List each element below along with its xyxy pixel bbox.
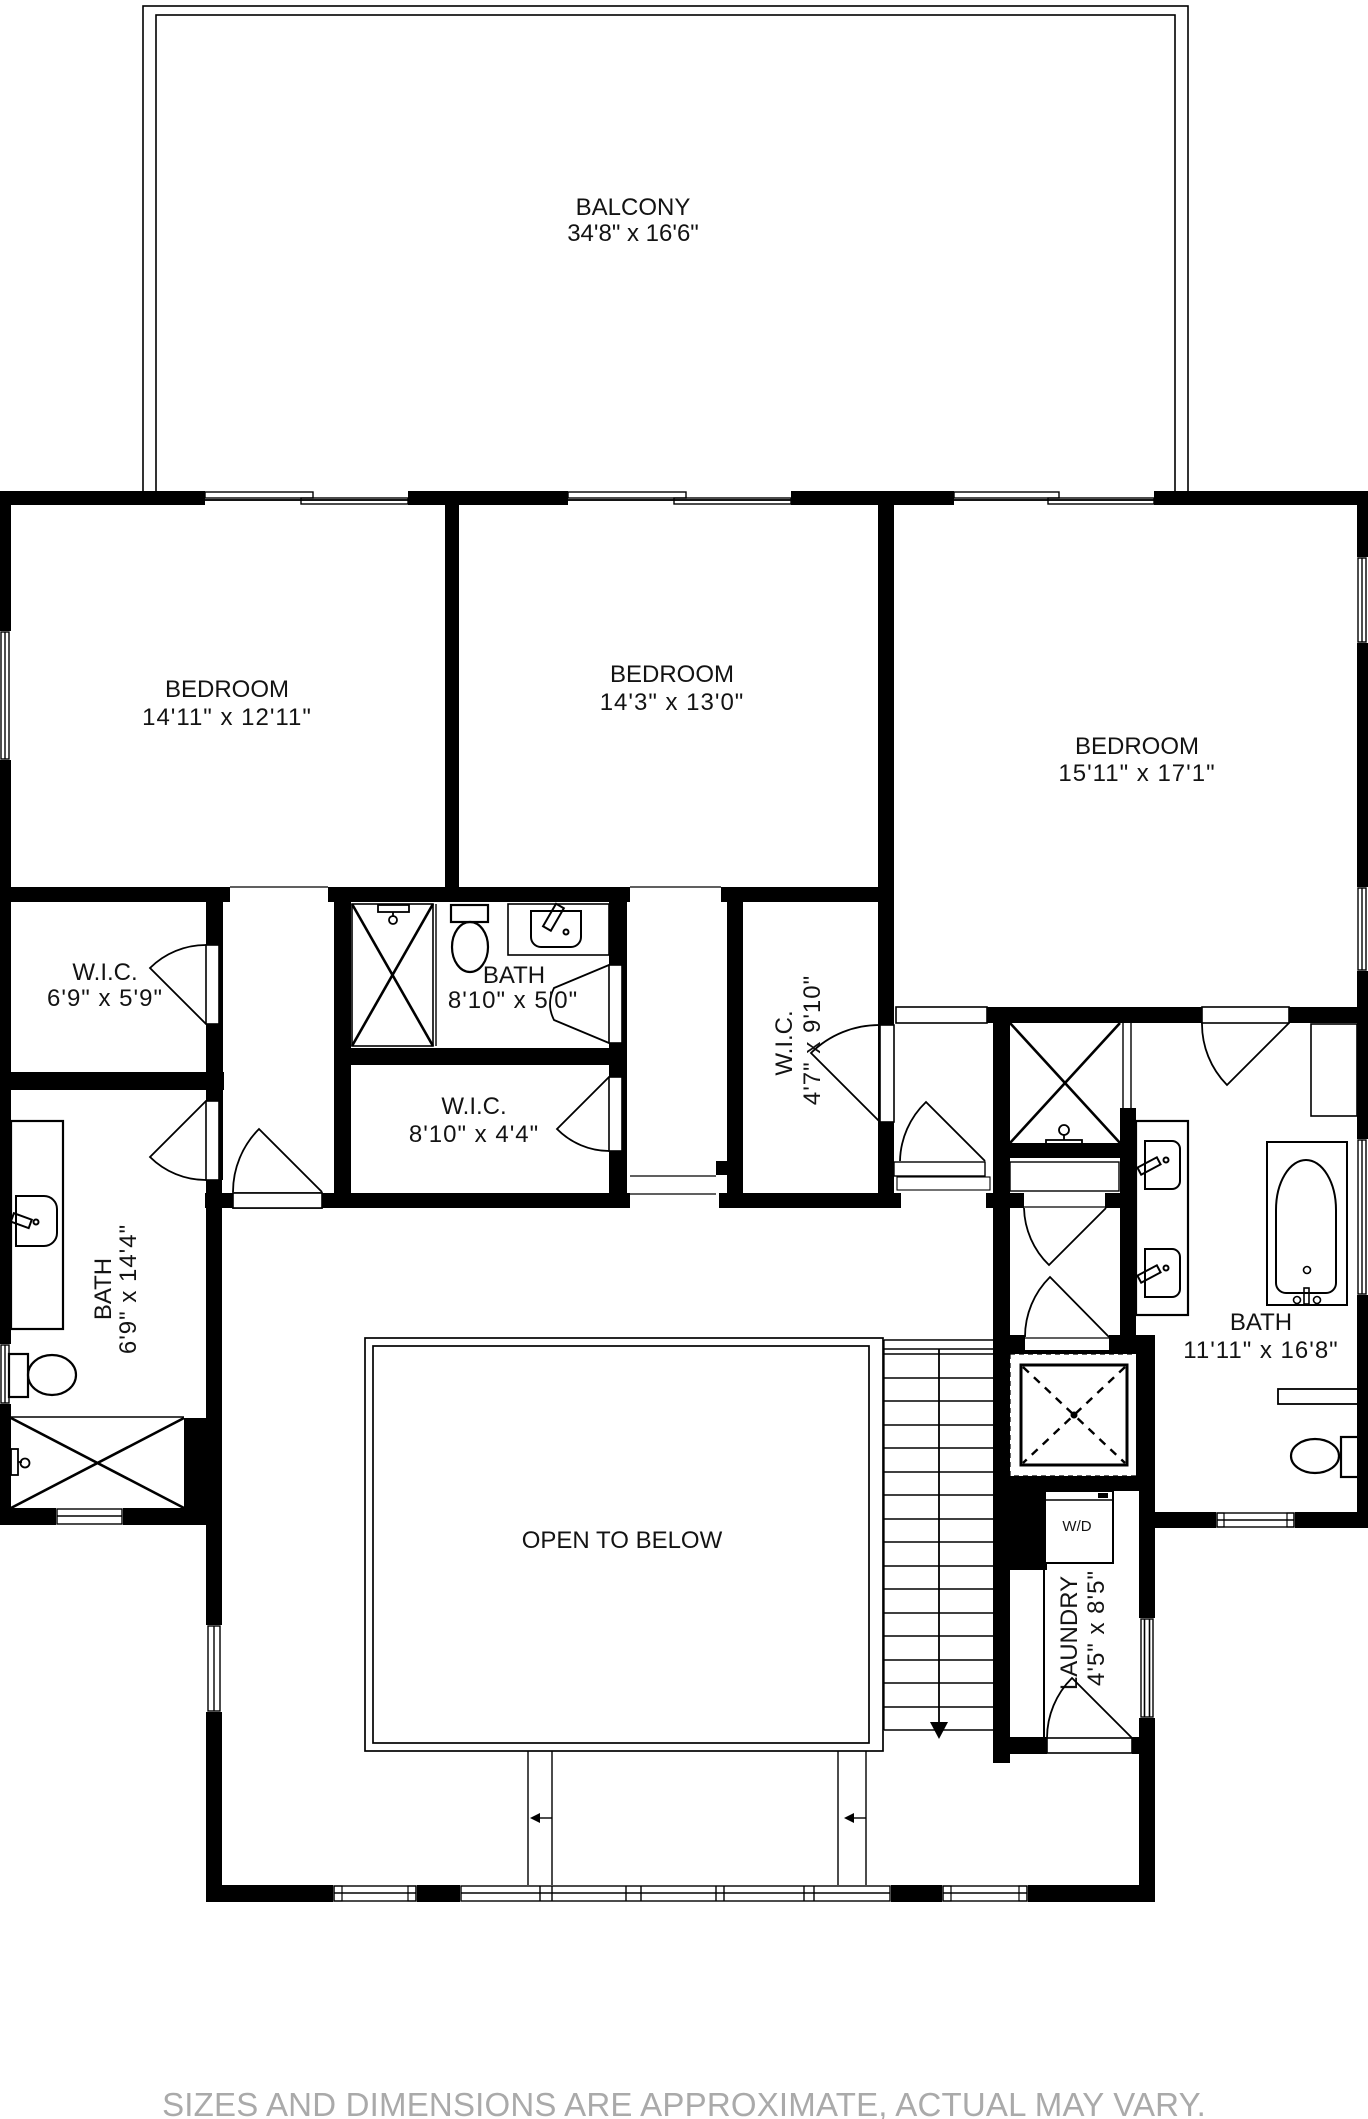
svg-text:BEDROOM: BEDROOM bbox=[1075, 733, 1199, 760]
svg-text:34'8" x 16'6": 34'8" x 16'6" bbox=[567, 220, 699, 247]
svg-text:15'11" x 17'1": 15'11" x 17'1" bbox=[1058, 760, 1215, 787]
svg-text:BATH: BATH bbox=[90, 1258, 117, 1320]
svg-text:OPEN TO BELOW: OPEN TO BELOW bbox=[522, 1527, 723, 1554]
svg-text:BEDROOM: BEDROOM bbox=[610, 661, 734, 688]
svg-text:LAUNDRY: LAUNDRY bbox=[1056, 1576, 1083, 1690]
svg-text:BATH: BATH bbox=[483, 962, 545, 989]
svg-text:W/D: W/D bbox=[1062, 1518, 1091, 1535]
svg-text:BATH: BATH bbox=[1230, 1309, 1292, 1336]
svg-text:SIZES AND DIMENSIONS ARE APPRO: SIZES AND DIMENSIONS ARE APPROXIMATE, AC… bbox=[162, 2086, 1206, 2119]
svg-text:W.I.C.: W.I.C. bbox=[441, 1093, 506, 1120]
svg-text:8'10" x 5'0": 8'10" x 5'0" bbox=[448, 987, 578, 1014]
svg-text:W.I.C.: W.I.C. bbox=[72, 959, 137, 986]
svg-text:6'9" x 14'4": 6'9" x 14'4" bbox=[115, 1224, 142, 1354]
svg-text:8'10" x 4'4": 8'10" x 4'4" bbox=[409, 1121, 539, 1148]
svg-text:W.I.C.: W.I.C. bbox=[771, 1010, 798, 1075]
svg-text:4'5" x 8'5": 4'5" x 8'5" bbox=[1083, 1570, 1110, 1686]
svg-text:11'11" x 16'8": 11'11" x 16'8" bbox=[1183, 1337, 1338, 1364]
svg-text:14'3" x 13'0": 14'3" x 13'0" bbox=[600, 689, 745, 716]
svg-text:14'11" x 12'11": 14'11" x 12'11" bbox=[142, 704, 312, 731]
svg-text:6'9" x 5'9": 6'9" x 5'9" bbox=[47, 985, 163, 1012]
svg-text:BALCONY: BALCONY bbox=[576, 194, 691, 221]
svg-text:BEDROOM: BEDROOM bbox=[165, 676, 289, 703]
svg-text:4'7" x 9'10": 4'7" x 9'10" bbox=[799, 975, 826, 1105]
